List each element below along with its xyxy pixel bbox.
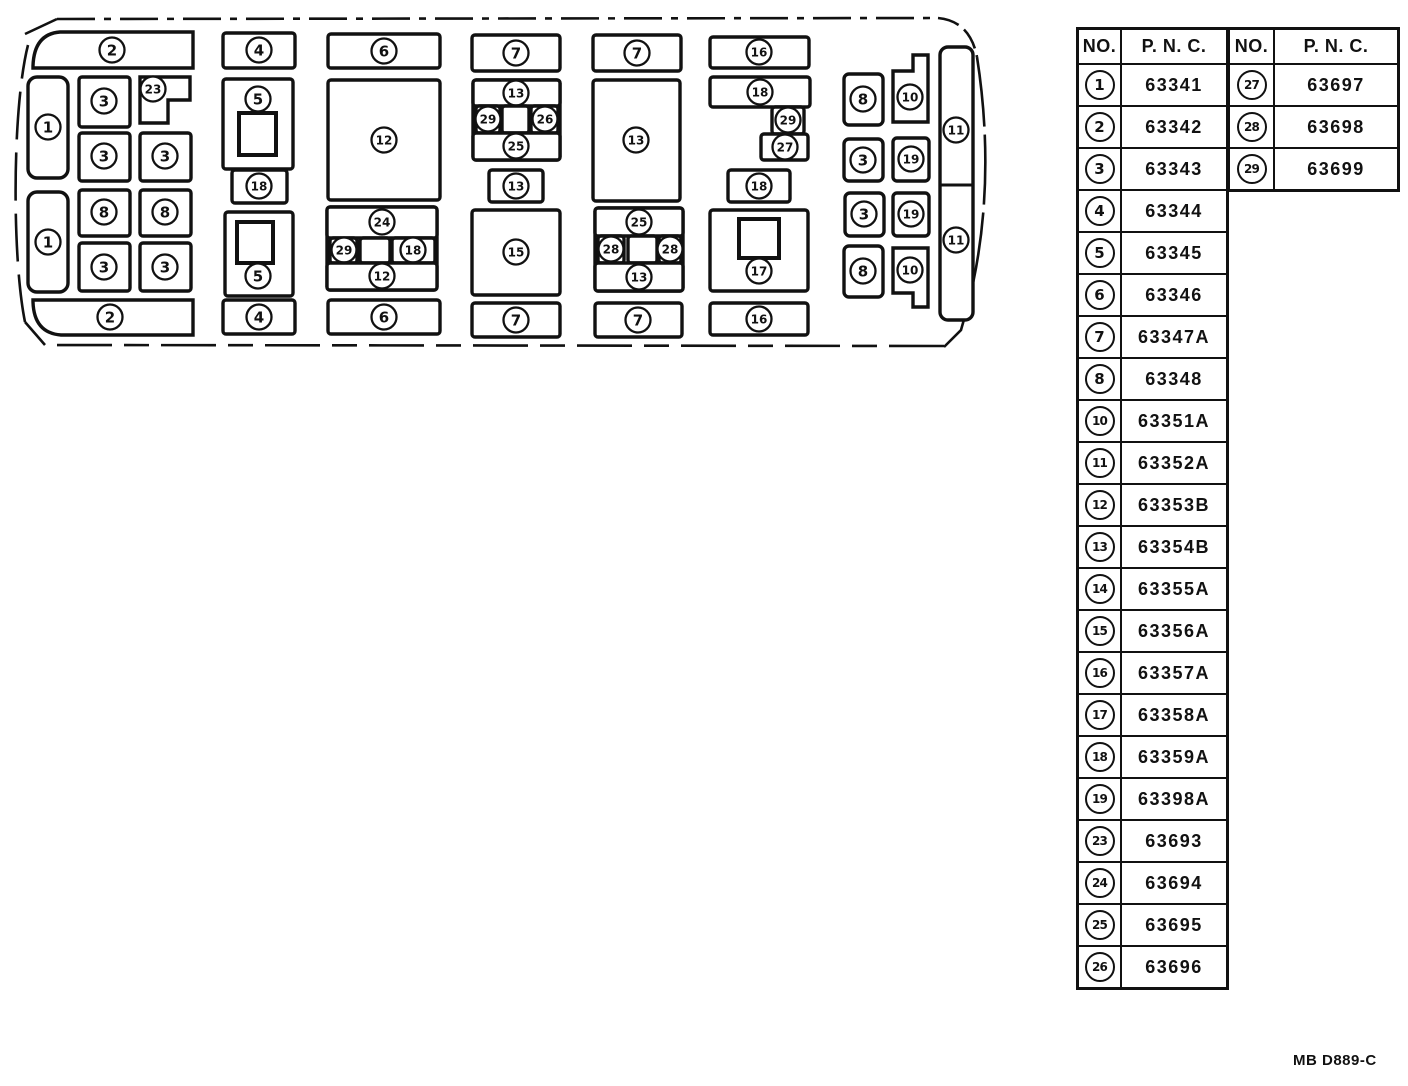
callout-label-6: 6: [379, 43, 389, 61]
table-row: 463344: [1078, 190, 1228, 232]
pnc-value: 63697: [1274, 64, 1399, 106]
part-no-cell: 8: [1078, 358, 1122, 400]
callout-label-7: 7: [633, 312, 643, 330]
callout-label-26: 26: [537, 113, 554, 127]
pnc-value: 63358A: [1121, 694, 1228, 736]
part-no-cell: 11: [1078, 442, 1122, 484]
table-row: 1763358A: [1078, 694, 1228, 736]
pnc-value: 63398A: [1121, 778, 1228, 820]
part-no-cell: 3: [1078, 148, 1122, 190]
circled-number: 29: [1237, 154, 1267, 184]
part-no-cell: 7: [1078, 316, 1122, 358]
callout-label-4: 4: [254, 42, 264, 60]
callout-label-1: 1: [43, 119, 53, 137]
callout-label-29: 29: [480, 113, 497, 127]
callout-label-3: 3: [99, 93, 109, 111]
circled-number: 27: [1237, 70, 1267, 100]
table-row: 2763697: [1229, 64, 1399, 106]
callout-label-13: 13: [508, 87, 525, 101]
part-box: [360, 238, 390, 263]
pnc-value: 63357A: [1121, 652, 1228, 694]
callout-label-19: 19: [903, 153, 920, 167]
pnc-value: 63347A: [1121, 316, 1228, 358]
callout-label-18: 18: [752, 86, 769, 100]
circled-number: 4: [1085, 196, 1115, 226]
pnc-value: 63359A: [1121, 736, 1228, 778]
part-no-cell: 23: [1078, 820, 1122, 862]
part-boxes: 2113233388332451854612242918126713292625…: [28, 32, 973, 337]
table-row: 263342: [1078, 106, 1228, 148]
part-no-cell: 26: [1078, 946, 1122, 989]
pnc-value: 63346: [1121, 274, 1228, 316]
pnc-header: P. N. C.: [1121, 29, 1228, 65]
callout-label-16: 16: [751, 46, 768, 60]
table-row: 2563695: [1078, 904, 1228, 946]
circled-number: 7: [1085, 322, 1115, 352]
pnc-value: 63696: [1121, 946, 1228, 989]
pnc-value: 63693: [1121, 820, 1228, 862]
part-no-cell: 27: [1229, 64, 1275, 106]
callout-label-5: 5: [253, 91, 263, 109]
circled-number: 28: [1237, 112, 1267, 142]
callout-label-8: 8: [858, 91, 868, 109]
table-row: 763347A: [1078, 316, 1228, 358]
part-no-cell: 4: [1078, 190, 1122, 232]
part-no-cell: 14: [1078, 568, 1122, 610]
callout-label-23: 23: [145, 83, 162, 97]
part-no-cell: 19: [1078, 778, 1122, 820]
callout-label-29: 29: [336, 244, 353, 258]
callout-label-25: 25: [631, 216, 648, 230]
part-no-cell: 28: [1229, 106, 1275, 148]
callout-label-12: 12: [374, 270, 391, 284]
callout-label-28: 28: [603, 243, 620, 257]
pnc-value: 63355A: [1121, 568, 1228, 610]
table-row: 1463355A: [1078, 568, 1228, 610]
pnc-value: 63344: [1121, 190, 1228, 232]
callout-label-5: 5: [253, 268, 263, 286]
callout-label-16: 16: [751, 313, 768, 327]
table-row: 1963398A: [1078, 778, 1228, 820]
pnc-value: 63699: [1274, 148, 1399, 191]
callout-label-3: 3: [99, 148, 109, 166]
callout-label-6: 6: [379, 309, 389, 327]
callout-label-28: 28: [662, 243, 679, 257]
part-no-cell: 16: [1078, 652, 1122, 694]
callout-label-10: 10: [902, 264, 919, 278]
callout-label-8: 8: [99, 204, 109, 222]
circled-number: 3: [1085, 154, 1115, 184]
table-row: 1563356A: [1078, 610, 1228, 652]
callout-label-3: 3: [160, 148, 170, 166]
inner-square: [739, 219, 779, 258]
callout-label-29: 29: [780, 114, 797, 128]
callout-label-2: 2: [107, 42, 117, 60]
circled-number: 1: [1085, 70, 1115, 100]
table-row: 1263353B: [1078, 484, 1228, 526]
circled-number: 17: [1085, 700, 1115, 730]
callout-label-3: 3: [858, 152, 868, 170]
callout-label-13: 13: [631, 271, 648, 285]
callout-label-25: 25: [508, 140, 525, 154]
table-row: 1863359A: [1078, 736, 1228, 778]
callout-label-13: 13: [628, 134, 645, 148]
drawing-code: MB D889-C: [1293, 1052, 1377, 1069]
table-header-row: NO. P. N. C.: [1229, 29, 1399, 65]
callout-label-2: 2: [105, 309, 115, 327]
callout-label-18: 18: [405, 244, 422, 258]
callout-label-8: 8: [160, 204, 170, 222]
pnc-table-right: NO. P. N. C. 276369728636982963699: [1227, 27, 1400, 192]
pnc-table-left: NO. P. N. C. 163341263342363343463344563…: [1076, 27, 1229, 990]
part-no-cell: 12: [1078, 484, 1122, 526]
callout-label-7: 7: [632, 45, 642, 63]
no-header: NO.: [1078, 29, 1122, 65]
pnc-value: 63341: [1121, 64, 1228, 106]
circled-number: 5: [1085, 238, 1115, 268]
circled-number: 11: [1085, 448, 1115, 478]
no-header: NO.: [1229, 29, 1275, 65]
circled-number: 25: [1085, 910, 1115, 940]
pnc-value: 63351A: [1121, 400, 1228, 442]
callout-label-4: 4: [254, 309, 264, 327]
pnc-value: 63348: [1121, 358, 1228, 400]
part-no-cell: 18: [1078, 736, 1122, 778]
circled-number: 2: [1085, 112, 1115, 142]
table-row: 2463694: [1078, 862, 1228, 904]
callout-label-12: 12: [376, 134, 393, 148]
pnc-value: 63342: [1121, 106, 1228, 148]
circled-number: 26: [1085, 952, 1115, 982]
circled-number: 24: [1085, 868, 1115, 898]
circled-number: 8: [1085, 364, 1115, 394]
pnc-value: 63356A: [1121, 610, 1228, 652]
callout-label-7: 7: [511, 45, 521, 63]
callout-label-8: 8: [858, 263, 868, 281]
circled-number: 19: [1085, 784, 1115, 814]
table-row: 1163352A: [1078, 442, 1228, 484]
pnc-header: P. N. C.: [1274, 29, 1399, 65]
circled-number: 23: [1085, 826, 1115, 856]
part-no-cell: 17: [1078, 694, 1122, 736]
pnc-value: 63353B: [1121, 484, 1228, 526]
part-no-cell: 15: [1078, 610, 1122, 652]
inner-square: [239, 113, 276, 155]
circled-number: 6: [1085, 280, 1115, 310]
pnc-value: 63695: [1121, 904, 1228, 946]
callout-label-3: 3: [99, 259, 109, 277]
part-no-cell: 29: [1229, 148, 1275, 191]
table-row: 863348: [1078, 358, 1228, 400]
circled-number: 10: [1085, 406, 1115, 436]
circled-number: 15: [1085, 616, 1115, 646]
part-no-cell: 1: [1078, 64, 1122, 106]
callout-label-3: 3: [859, 206, 869, 224]
table-row: 2663696: [1078, 946, 1228, 989]
callout-label-11: 11: [948, 124, 965, 138]
callout-label-1: 1: [43, 234, 53, 252]
catalog-page: 2113233388332451854612242918126713292625…: [0, 0, 1408, 1086]
inner-square: [237, 222, 273, 263]
callout-label-18: 18: [751, 180, 768, 194]
circled-number: 18: [1085, 742, 1115, 772]
circled-number: 13: [1085, 532, 1115, 562]
pnc-value: 63343: [1121, 148, 1228, 190]
callout-label-10: 10: [902, 91, 919, 105]
pnc-value: 63345: [1121, 232, 1228, 274]
callout-label-27: 27: [777, 141, 794, 155]
callout-label-18: 18: [251, 180, 268, 194]
pnc-value: 63694: [1121, 862, 1228, 904]
table-row: 363343: [1078, 148, 1228, 190]
pnc-value: 63354B: [1121, 526, 1228, 568]
callout-label-11: 11: [948, 234, 965, 248]
table-row: 2963699: [1229, 148, 1399, 191]
table-row: 563345: [1078, 232, 1228, 274]
callout-label-19: 19: [903, 208, 920, 222]
circled-number: 12: [1085, 490, 1115, 520]
table-header-row: NO. P. N. C.: [1078, 29, 1228, 65]
callout-label-15: 15: [508, 246, 525, 260]
table-row: 663346: [1078, 274, 1228, 316]
callout-label-17: 17: [751, 265, 768, 279]
part-box: [628, 236, 657, 263]
roof-panel-diagram: 2113233388332451854612242918126713292625…: [0, 0, 1000, 365]
table-row: 1363354B: [1078, 526, 1228, 568]
part-no-cell: 6: [1078, 274, 1122, 316]
table-row: 2863698: [1229, 106, 1399, 148]
part-box: [502, 106, 529, 133]
part-no-cell: 2: [1078, 106, 1122, 148]
table-row: 2363693: [1078, 820, 1228, 862]
callout-label-24: 24: [374, 216, 391, 230]
circled-number: 14: [1085, 574, 1115, 604]
table-row: 1663357A: [1078, 652, 1228, 694]
part-no-cell: 5: [1078, 232, 1122, 274]
callout-label-7: 7: [511, 312, 521, 330]
circled-number: 16: [1085, 658, 1115, 688]
callout-label-3: 3: [160, 259, 170, 277]
part-no-cell: 10: [1078, 400, 1122, 442]
callout-label-13: 13: [508, 180, 525, 194]
table-row: 1063351A: [1078, 400, 1228, 442]
pnc-value: 63352A: [1121, 442, 1228, 484]
pnc-value: 63698: [1274, 106, 1399, 148]
table-row: 163341: [1078, 64, 1228, 106]
part-no-cell: 25: [1078, 904, 1122, 946]
part-no-cell: 13: [1078, 526, 1122, 568]
part-no-cell: 24: [1078, 862, 1122, 904]
